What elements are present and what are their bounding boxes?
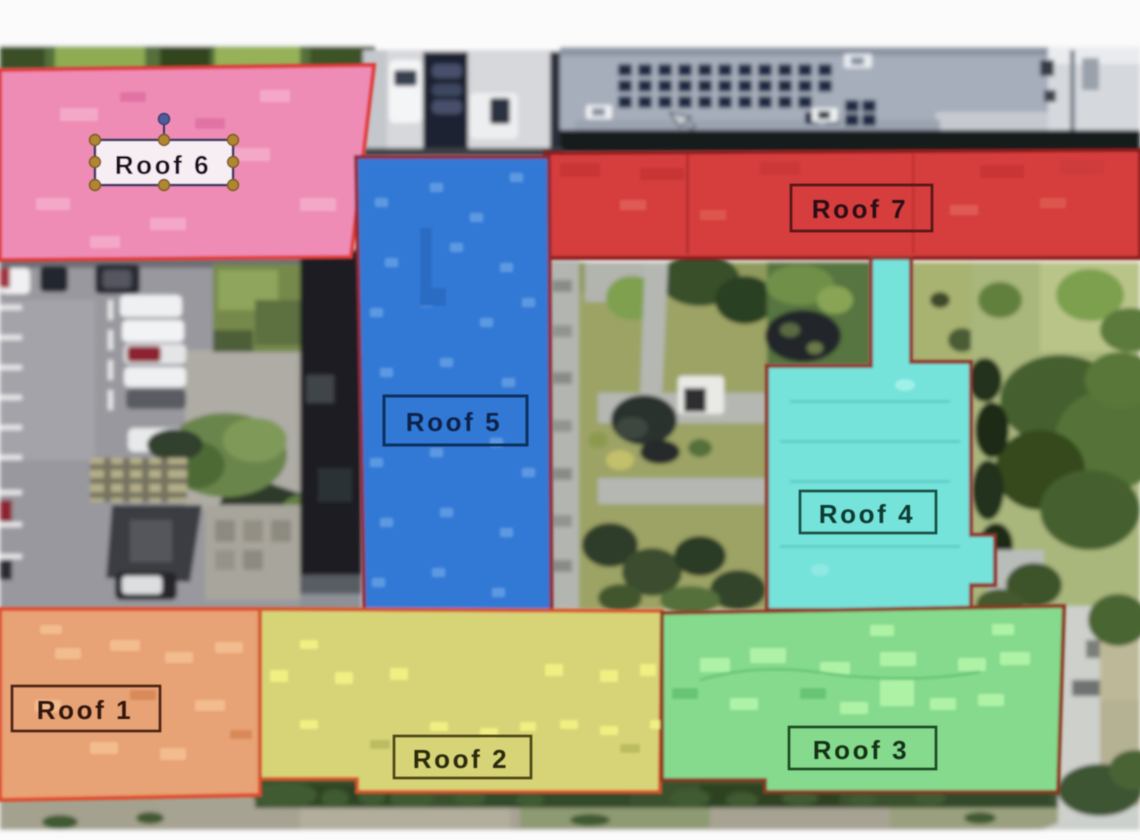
svg-text:Roof 4: Roof 4 bbox=[819, 499, 915, 529]
svg-text:Roof 2: Roof 2 bbox=[413, 744, 509, 774]
svg-text:Roof 3: Roof 3 bbox=[813, 735, 909, 765]
svg-text:Roof 1: Roof 1 bbox=[37, 695, 133, 725]
svg-text:Roof 7: Roof 7 bbox=[812, 194, 908, 224]
svg-text:Roof 6: Roof 6 bbox=[115, 150, 211, 180]
svg-text:Roof 5: Roof 5 bbox=[406, 407, 502, 437]
